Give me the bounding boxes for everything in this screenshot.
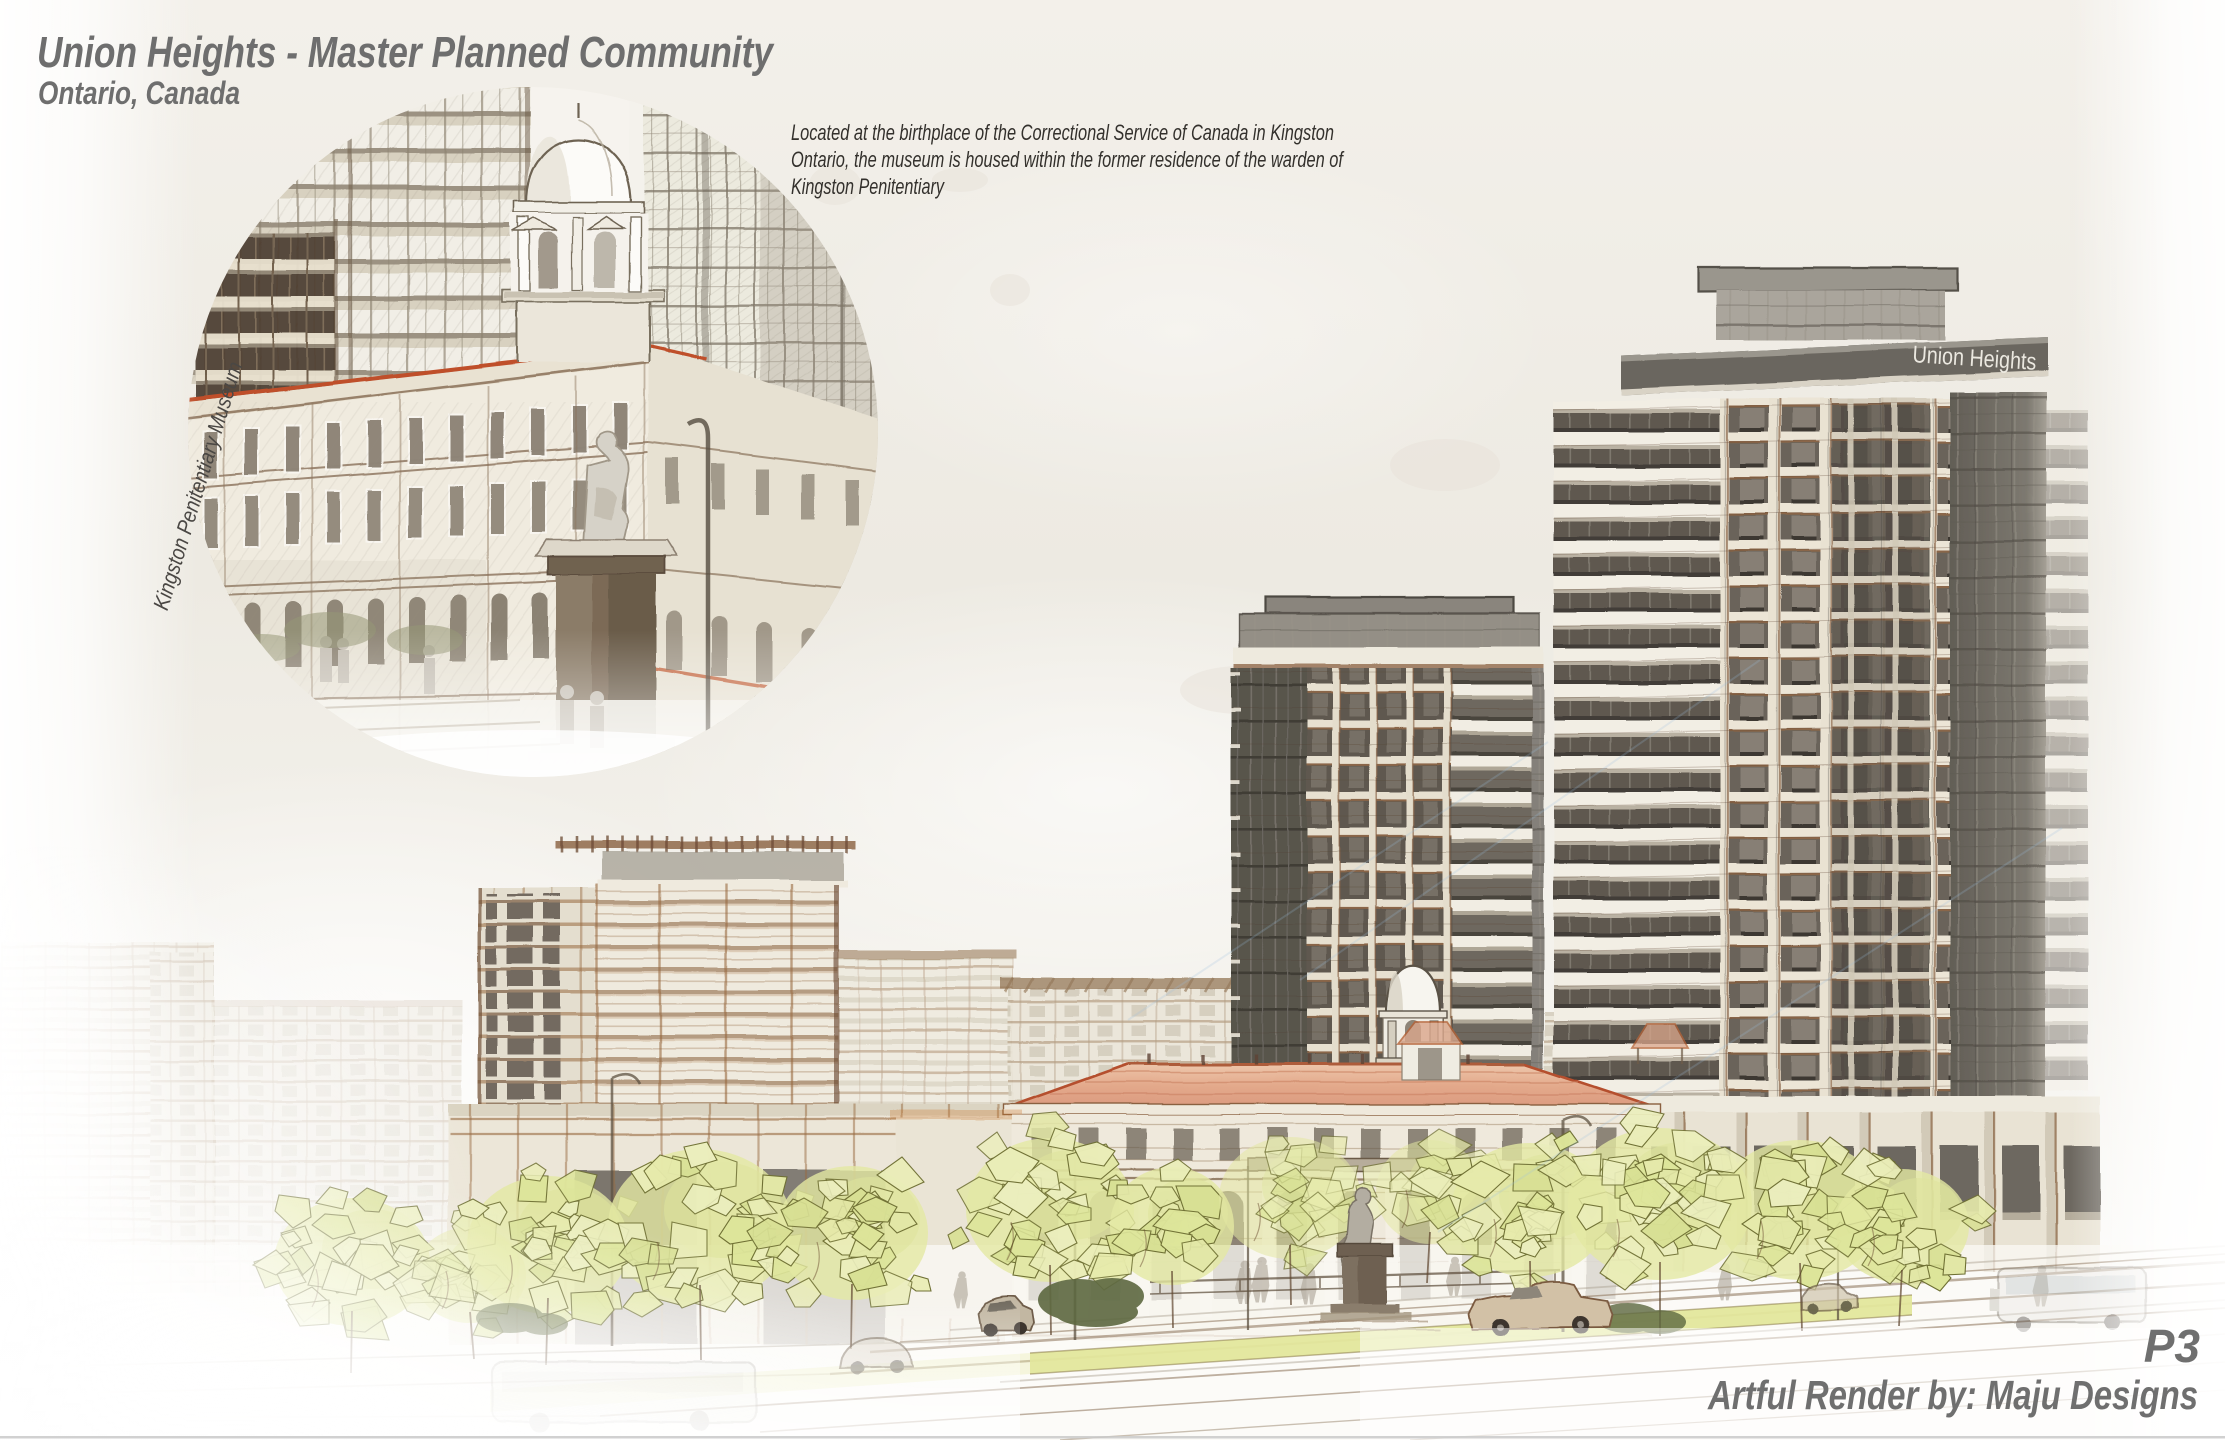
svg-text:Kingston Penitentiary: Kingston Penitentiary: [791, 174, 945, 199]
svg-text:Ontario, the museum is housed: Ontario, the museum is housed within the…: [791, 147, 1345, 172]
svg-text:Ontario, Canada: Ontario, Canada: [38, 75, 240, 111]
svg-text:Located at the birthplace of t: Located at the birthplace of the Correct…: [791, 120, 1334, 145]
svg-text:Artful Render by: Maju Designs: Artful Render by: Maju Designs: [1707, 1372, 2198, 1418]
svg-text:Union Heights - Master Planned: Union Heights - Master Planned Community: [37, 28, 775, 77]
svg-text:P3: P3: [2144, 1320, 2201, 1372]
